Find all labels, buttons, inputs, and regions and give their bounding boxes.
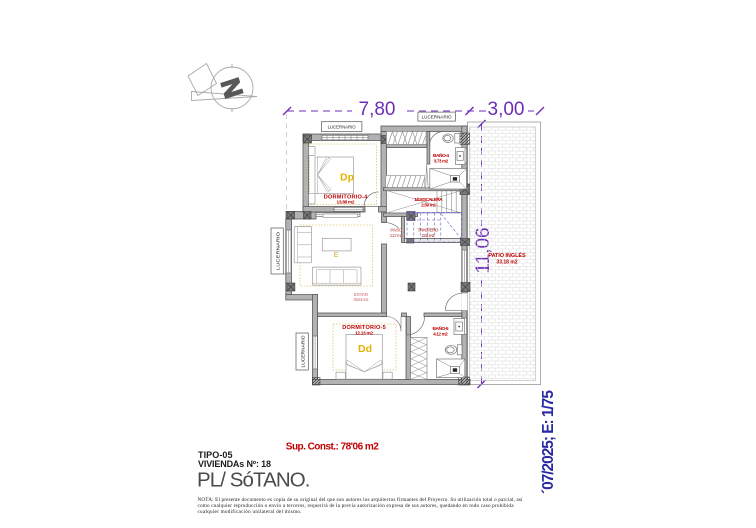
svg-text:2.02 m2: 2.02 m2 xyxy=(422,233,435,238)
svg-text:2.59 m2: 2.59 m2 xyxy=(421,202,436,207)
svg-text:Dp: Dp xyxy=(340,172,354,184)
svg-text:Dd: Dd xyxy=(358,343,372,355)
svg-text:3,00: 3,00 xyxy=(488,99,525,120)
svg-text:12.13 m2: 12.13 m2 xyxy=(355,330,373,336)
svg-text:25.51 m2: 25.51 m2 xyxy=(354,297,369,302)
svg-text:DORMITORIO-5: DORMITORIO-5 xyxy=(342,325,386,331)
svg-text:LUCERNARIO: LUCERNARIO xyxy=(328,125,356,131)
svg-text:13.88 m2: 13.88 m2 xyxy=(337,200,355,206)
svg-text:LUCERNARIO: LUCERNARIO xyxy=(422,115,452,121)
svg-text:33.18 m2: 33.18 m2 xyxy=(496,260,517,266)
svg-text:E: E xyxy=(334,252,339,259)
svg-text:NOTA: El presente documento es: NOTA: El presente documento es copia de … xyxy=(198,496,524,503)
svg-text:cualquier modificación unilate: cualquier modificación unilateral del mi… xyxy=(198,508,302,515)
svg-text:PATIO INGLÉS: PATIO INGLÉS xyxy=(488,251,526,259)
svg-text:DORMITORIO-4: DORMITORIO-4 xyxy=(324,194,368,200)
svg-text:Sup. Const.: 78'06 m2: Sup. Const.: 78'06 m2 xyxy=(286,442,379,453)
svg-text:LUCERNARIO: LUCERNARIO xyxy=(276,232,282,270)
svg-text:1.17 m2: 1.17 m2 xyxy=(390,233,403,238)
svg-text:7,80: 7,80 xyxy=(359,99,396,120)
svg-text:PL/ SóTANO.: PL/ SóTANO. xyxy=(197,468,311,491)
svg-text:3.73 m2: 3.73 m2 xyxy=(434,159,449,164)
svg-text:LUCERNARIO: LUCERNARIO xyxy=(301,335,307,367)
svg-text:VIVIENDAs Nº: 18: VIVIENDAs Nº: 18 xyxy=(198,459,271,469)
svg-text:4.12 m2: 4.12 m2 xyxy=(433,332,448,337)
svg-text:´07/2025; E: 1/75: ´07/2025; E: 1/75 xyxy=(540,390,557,494)
